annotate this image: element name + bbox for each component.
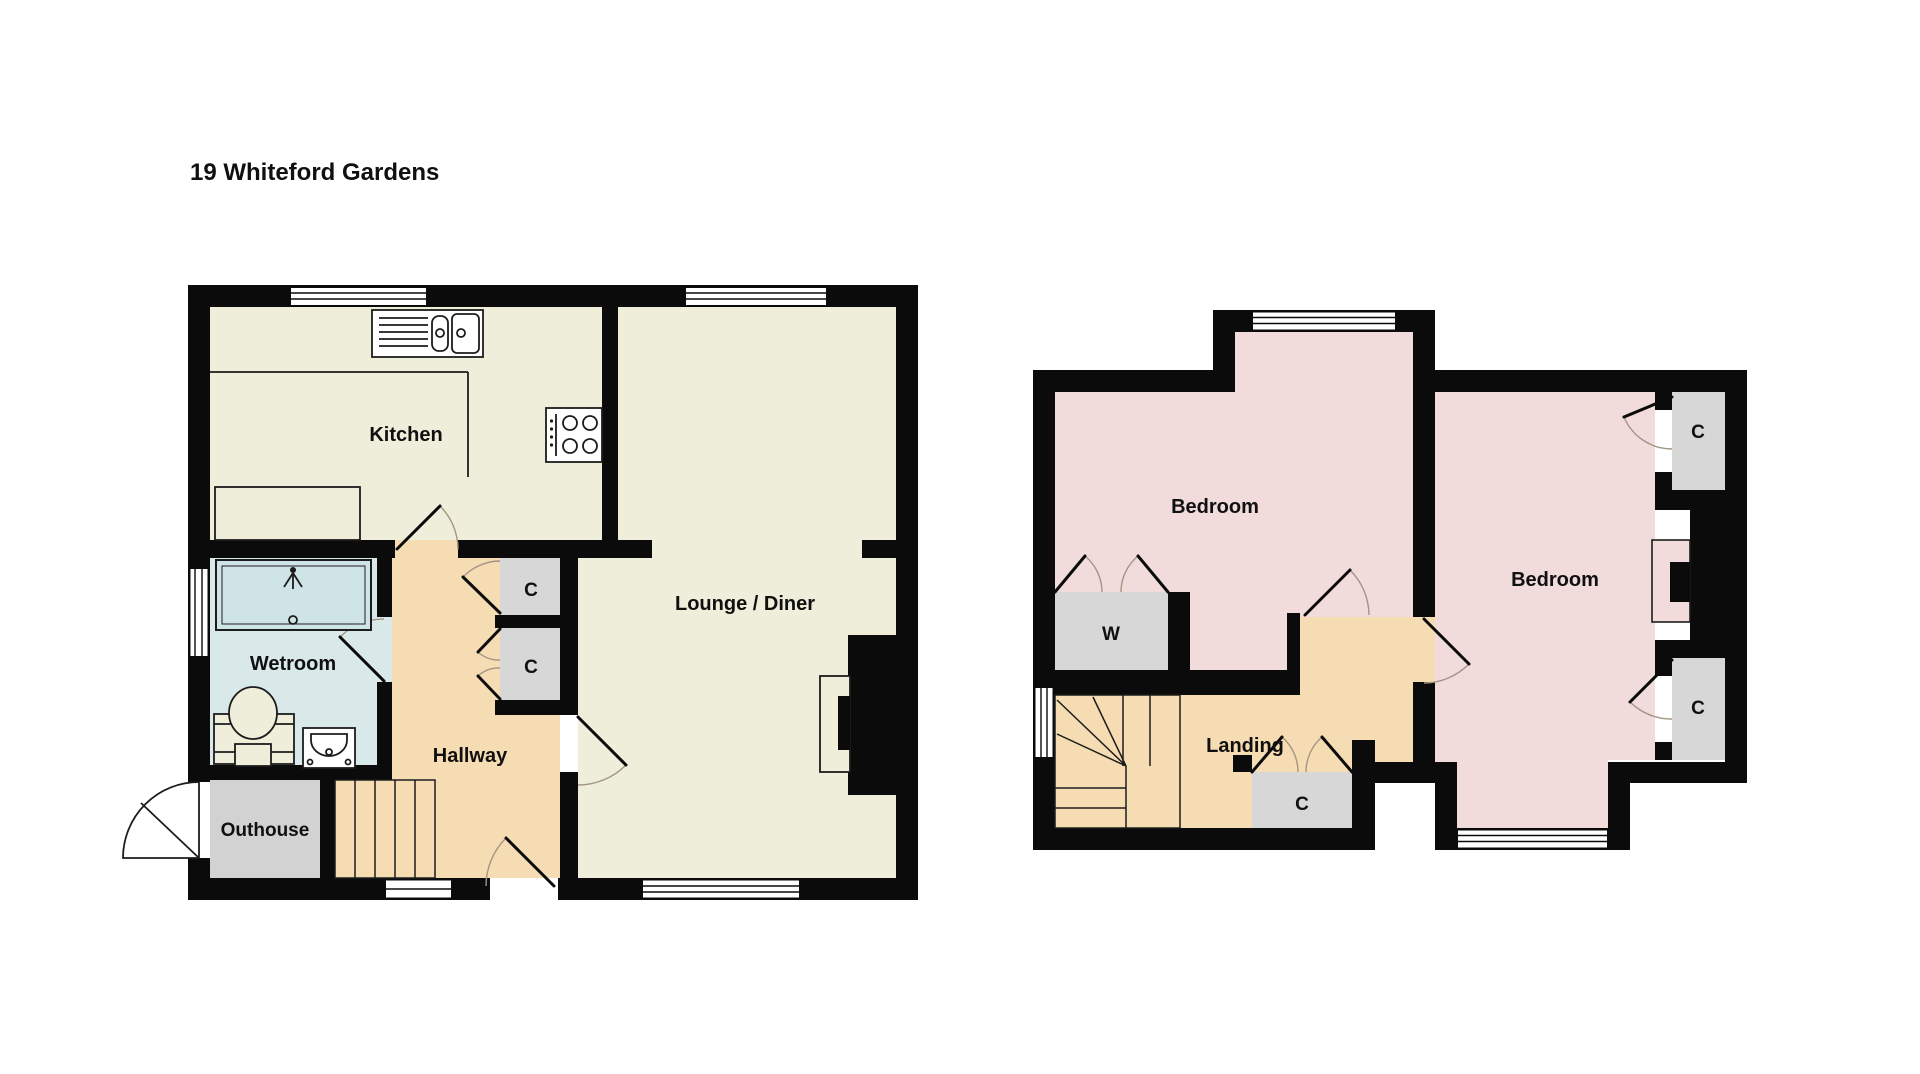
first-floor-stairs xyxy=(1055,695,1180,828)
floorplan-page: 19 Whiteford Gardens xyxy=(0,0,1920,1074)
wardrobe-label: W xyxy=(1102,624,1120,645)
closet-lower-label: C xyxy=(524,657,538,678)
closet-landing-label: C xyxy=(1295,794,1309,815)
shower-icon xyxy=(216,560,371,630)
kitchen-window xyxy=(290,287,427,306)
page-title: 19 Whiteford Gardens xyxy=(190,159,439,186)
bedroom-left-window xyxy=(1252,312,1396,331)
wetroom-label: Wetroom xyxy=(250,653,336,675)
closet-bottom-right-label: C xyxy=(1691,698,1705,719)
hallway-window xyxy=(385,880,452,899)
chimney-recess xyxy=(1652,540,1690,622)
wetroom-doorway-gap xyxy=(377,617,392,682)
lounge-diner-label: Lounge / Diner xyxy=(675,593,815,615)
stairs-window xyxy=(1035,687,1054,758)
ground-floor-plan: Kitchen Lounge / Diner Wetroom Hallway O… xyxy=(123,285,918,900)
hallway-label: Hallway xyxy=(433,745,508,767)
bedroom-left-label: Bedroom xyxy=(1171,496,1259,518)
closet-top-right-label: C xyxy=(1691,422,1705,443)
floorplan-drawing: 19 Whiteford Gardens xyxy=(0,0,1920,1074)
kitchen-label: Kitchen xyxy=(369,424,442,446)
hob-icon xyxy=(546,408,602,462)
basin-icon xyxy=(303,728,355,768)
closet-upper-label: C xyxy=(524,580,538,601)
landing-label: Landing xyxy=(1206,735,1284,757)
lounge-bottom-window xyxy=(642,880,800,899)
ground-stairs xyxy=(335,780,435,878)
first-floor-plan: Bedroom Bedroom Landing W C C C xyxy=(1033,310,1747,850)
sink-icon xyxy=(372,310,483,357)
wetroom-window xyxy=(190,568,209,657)
outhouse-label: Outhouse xyxy=(221,820,310,841)
bedroom-right-window xyxy=(1457,830,1608,849)
bedroom-right-label: Bedroom xyxy=(1511,569,1599,591)
outhouse-door xyxy=(123,782,199,858)
lounge-top-window xyxy=(685,287,827,306)
